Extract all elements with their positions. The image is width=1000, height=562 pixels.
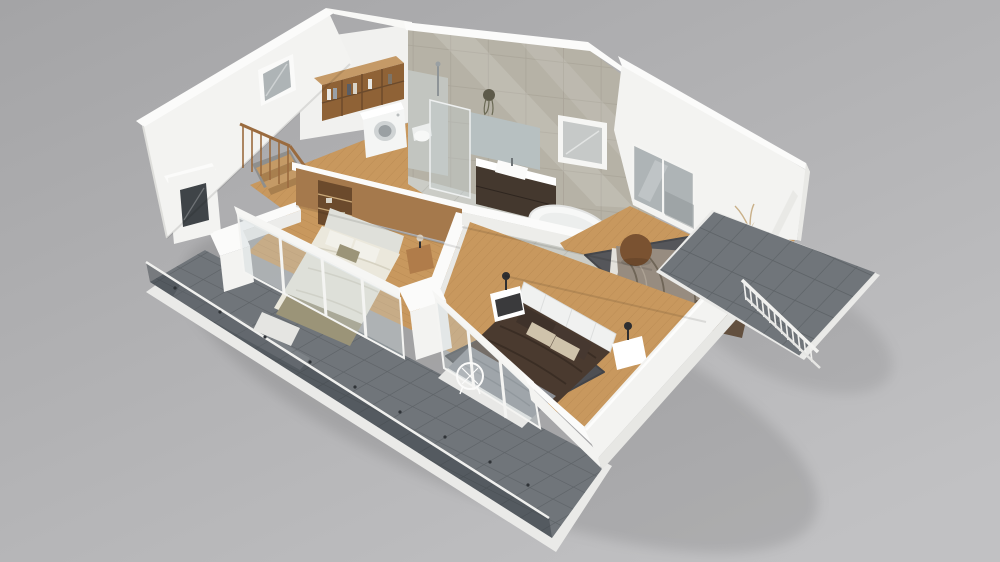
shelf-item — [326, 198, 332, 203]
render-canvas — [0, 0, 1000, 562]
hanging-plant — [483, 89, 495, 101]
shower-head — [436, 62, 441, 67]
shower-glass — [430, 100, 470, 198]
bathroom-window — [558, 115, 607, 170]
floorplan-3d-render — [0, 0, 1000, 562]
